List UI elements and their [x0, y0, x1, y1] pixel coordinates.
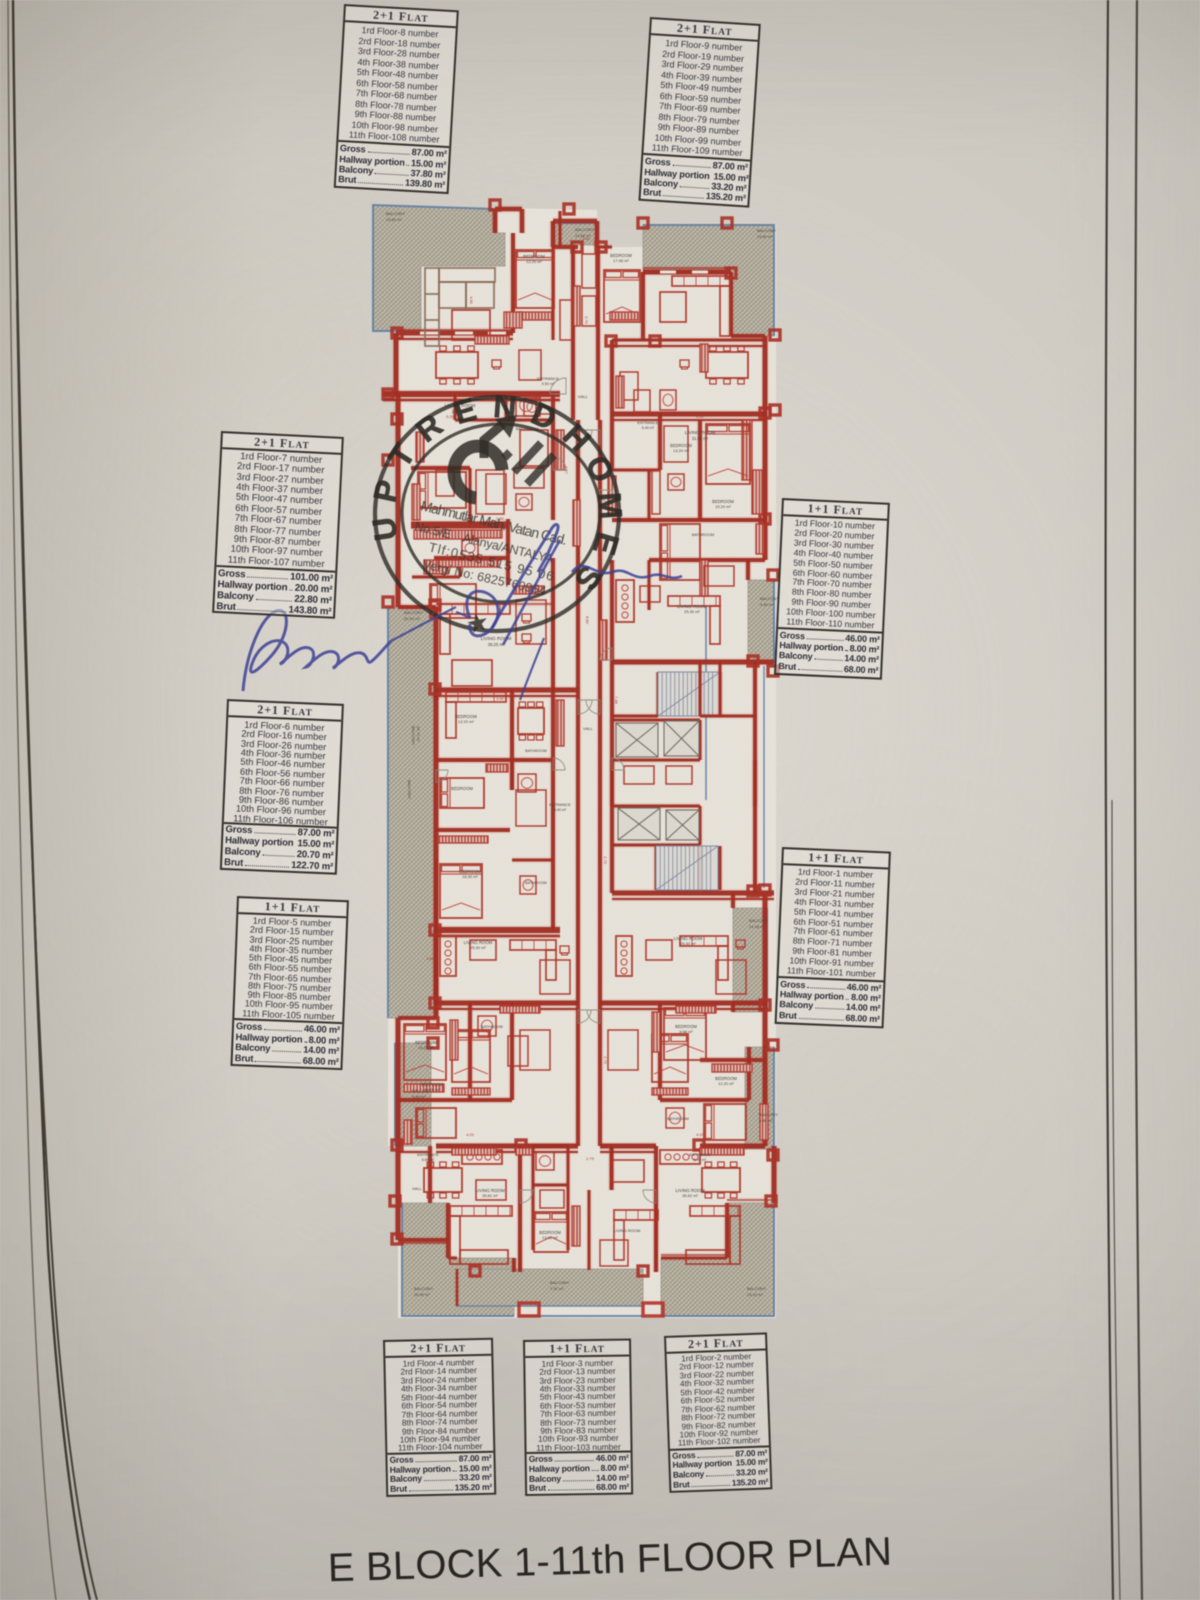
svg-text:23.90 m²: 23.90 m²: [757, 234, 773, 239]
svg-text:12.20 m²: 12.20 m²: [458, 719, 474, 724]
svg-text:HALL: HALL: [578, 394, 589, 399]
svg-text:25.30 m²: 25.30 m²: [470, 945, 486, 950]
svg-text:17.48 m²: 17.48 m²: [613, 258, 629, 263]
svg-text:HALL: HALL: [583, 727, 593, 731]
svg-text:12.20 m²: 12.20 m²: [526, 259, 542, 264]
svg-text:BEDROOM: BEDROOM: [451, 786, 473, 791]
svg-text:BALCONY: BALCONY: [550, 1280, 569, 1285]
svg-text:35.62 m²: 35.62 m²: [682, 1193, 698, 1198]
svg-text:5.69 m²: 5.69 m²: [422, 1158, 435, 1162]
svg-text:BALCONY: BALCONY: [575, 227, 594, 232]
svg-text:26.70 m²: 26.70 m²: [416, 726, 421, 742]
svg-text:ENTRANCE: ENTRANCE: [417, 1152, 439, 1157]
svg-text:BALCONY: BALCONY: [747, 1286, 766, 1291]
svg-text:4.20: 4.20: [696, 1132, 705, 1137]
svg-text:15.20 m²: 15.20 m²: [418, 1045, 434, 1050]
svg-text:U: U: [365, 515, 404, 543]
svg-text:BALCONY: BALCONY: [386, 211, 405, 216]
svg-text:ENTRANCE: ENTRANCE: [549, 802, 571, 807]
svg-text:ENTRANCE: ENTRANCE: [689, 1152, 711, 1157]
svg-text:3.60: 3.60: [582, 236, 591, 241]
svg-text:BALCONY: BALCONY: [412, 1088, 431, 1093]
svg-text:9.98 m²: 9.98 m²: [679, 1029, 693, 1034]
svg-text:ENTRANCE: ENTRANCE: [537, 376, 559, 381]
svg-text:2.70: 2.70: [603, 1056, 608, 1065]
svg-text:BALCONY: BALCONY: [414, 1286, 433, 1291]
svg-text:5.40 m²: 5.40 m²: [554, 808, 567, 812]
svg-text:35.81 m²: 35.81 m²: [482, 1193, 498, 1198]
svg-text:BALCONY: BALCONY: [759, 1112, 778, 1117]
svg-text:BATHROOM: BATHROOM: [692, 532, 714, 537]
svg-text:23.10 m²: 23.10 m²: [747, 1292, 763, 1297]
svg-text:16.30 m²: 16.30 m²: [462, 874, 478, 879]
svg-text:BALCONY: BALCONY: [407, 780, 412, 799]
svg-text:25.30 m²: 25.30 m²: [684, 609, 700, 614]
svg-text:14.18 m²: 14.18 m²: [749, 924, 765, 929]
svg-text:5.20: 5.20: [446, 414, 455, 419]
svg-text:4.90: 4.90: [469, 296, 474, 305]
svg-text:15.20 m²: 15.20 m²: [715, 504, 731, 509]
svg-text:M: M: [591, 491, 629, 520]
svg-text:9.40 m²: 9.40 m²: [412, 1094, 426, 1099]
svg-text:2.79: 2.79: [586, 1156, 595, 1161]
svg-text:7.48: 7.48: [614, 696, 619, 705]
svg-text:12.20 m²: 12.20 m²: [718, 1081, 734, 1086]
svg-text:9.40 m²: 9.40 m²: [760, 602, 774, 607]
svg-text:4.20: 4.20: [466, 1132, 475, 1137]
svg-text:2.70: 2.70: [584, 316, 589, 325]
svg-text:13.92 m²: 13.92 m²: [542, 1235, 558, 1240]
svg-text:HALL: HALL: [412, 1187, 422, 1191]
svg-text:LIVING ROOM: LIVING ROOM: [685, 430, 716, 435]
svg-text:ENTRANCE: ENTRANCE: [637, 420, 659, 425]
svg-text:8.80: 8.80: [585, 616, 590, 625]
svg-text:1.57: 1.57: [564, 466, 569, 475]
svg-text:LIVING ROOM: LIVING ROOM: [614, 1228, 641, 1233]
svg-text:13.20 m²: 13.20 m²: [673, 448, 689, 453]
svg-text:BATHROOM: BATHROOM: [481, 1025, 503, 1029]
svg-text:20.90 m²: 20.90 m²: [414, 1292, 430, 1297]
svg-text:2.70: 2.70: [603, 856, 608, 865]
svg-text:23.80 m²: 23.80 m²: [386, 217, 402, 222]
svg-text:BALCONY: BALCONY: [749, 918, 768, 923]
svg-text:31.88 m²: 31.88 m²: [692, 436, 709, 441]
svg-text:BATHROOM: BATHROOM: [667, 1117, 689, 1121]
svg-text:6.60: 6.60: [696, 414, 705, 419]
svg-text:9.50 m²: 9.50 m²: [542, 382, 556, 386]
svg-text:BALCONY: BALCONY: [757, 228, 776, 233]
svg-text:BATHROOM: BATHROOM: [525, 881, 547, 885]
svg-text:BATHROOM: BATHROOM: [525, 749, 547, 753]
svg-text:7.02 m²: 7.02 m²: [550, 1286, 564, 1291]
svg-text:BALCONY: BALCONY: [404, 610, 423, 615]
svg-text:25.30 m²: 25.30 m²: [680, 941, 696, 946]
svg-text:5.40 m²: 5.40 m²: [642, 426, 655, 430]
svg-text:3.90: 3.90: [496, 696, 505, 701]
svg-text:22.90 m²: 22.90 m²: [404, 616, 420, 621]
svg-text:BALCONY: BALCONY: [411, 726, 416, 745]
svg-text:5.92 m²: 5.92 m²: [694, 1158, 707, 1162]
svg-text:4.80: 4.80: [426, 956, 435, 961]
svg-text:9.40 m²: 9.40 m²: [759, 1118, 773, 1123]
